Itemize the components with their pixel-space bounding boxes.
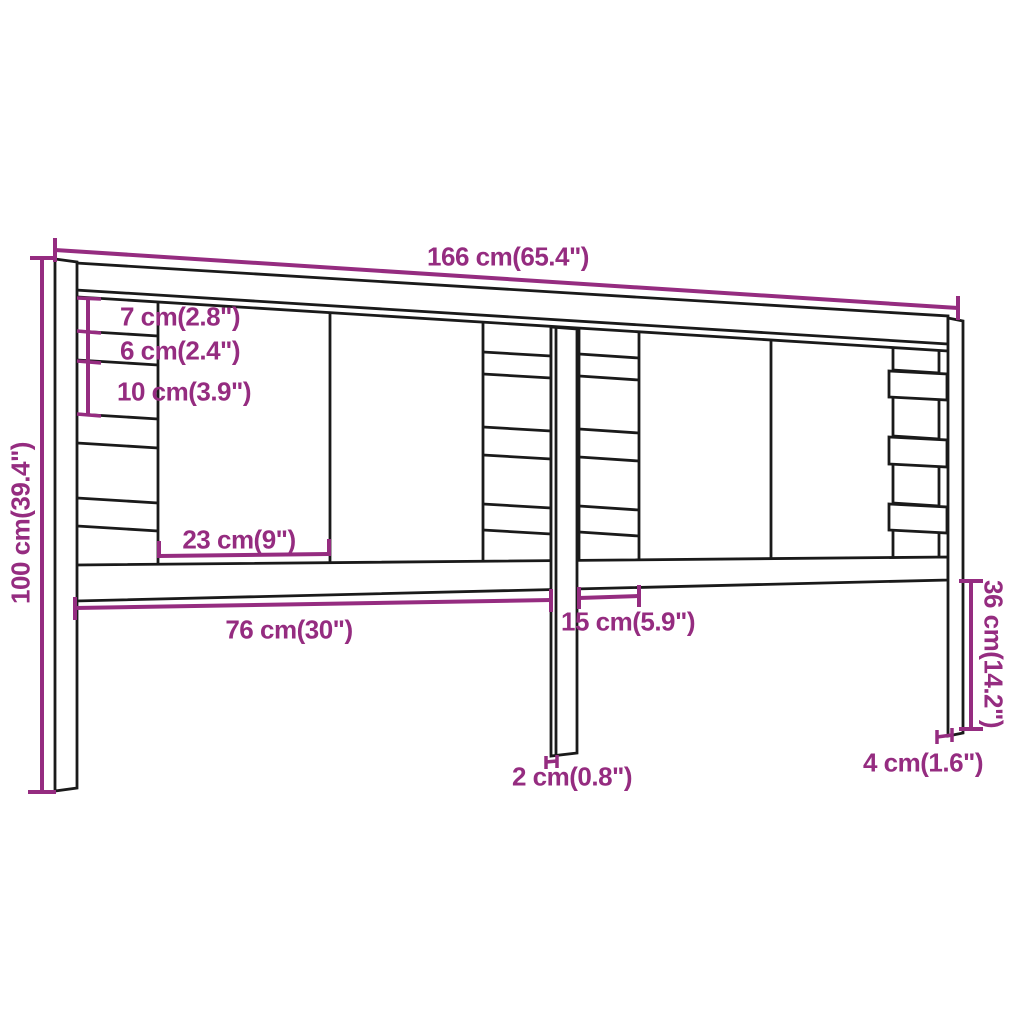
- right-slat-strip: [889, 370, 947, 533]
- dim-leg-height-label: 36 cm(14.2"): [978, 580, 1009, 728]
- left-post: [55, 259, 77, 791]
- dim-slat-bracket-line: [77, 298, 101, 416]
- dim-mid-gap-label: 10 cm(3.9"): [117, 377, 251, 408]
- dim-slat-height-label: 6 cm(2.4"): [120, 336, 240, 367]
- headboard-line-drawing: [0, 0, 1024, 1024]
- right-post: [948, 318, 963, 736]
- headboard-dimension-diagram: 166 cm(65.4") 100 cm(39.4") 7 cm(2.8") 6…: [0, 0, 1024, 1024]
- bottom-rail: [76, 557, 948, 601]
- center-leg: [551, 327, 577, 756]
- center-left-slat-strip: [483, 352, 551, 534]
- dim-post-thickness-label: 4 cm(1.6"): [863, 748, 983, 779]
- dim-board-width-label: 23 cm(9"): [182, 525, 295, 556]
- dim-left-span-label: 76 cm(30"): [225, 615, 352, 646]
- dim-top-gap-label: 7 cm(2.8"): [120, 302, 240, 333]
- dim-total-height-label: 100 cm(39.4"): [6, 442, 37, 604]
- dim-strip-width-label: 15 cm(5.9"): [561, 607, 695, 638]
- dim-total-width-label: 166 cm(65.4"): [427, 242, 589, 273]
- center-right-slat-strip: [579, 354, 639, 536]
- dim-center-leg-thickness-label: 2 cm(0.8"): [512, 762, 632, 793]
